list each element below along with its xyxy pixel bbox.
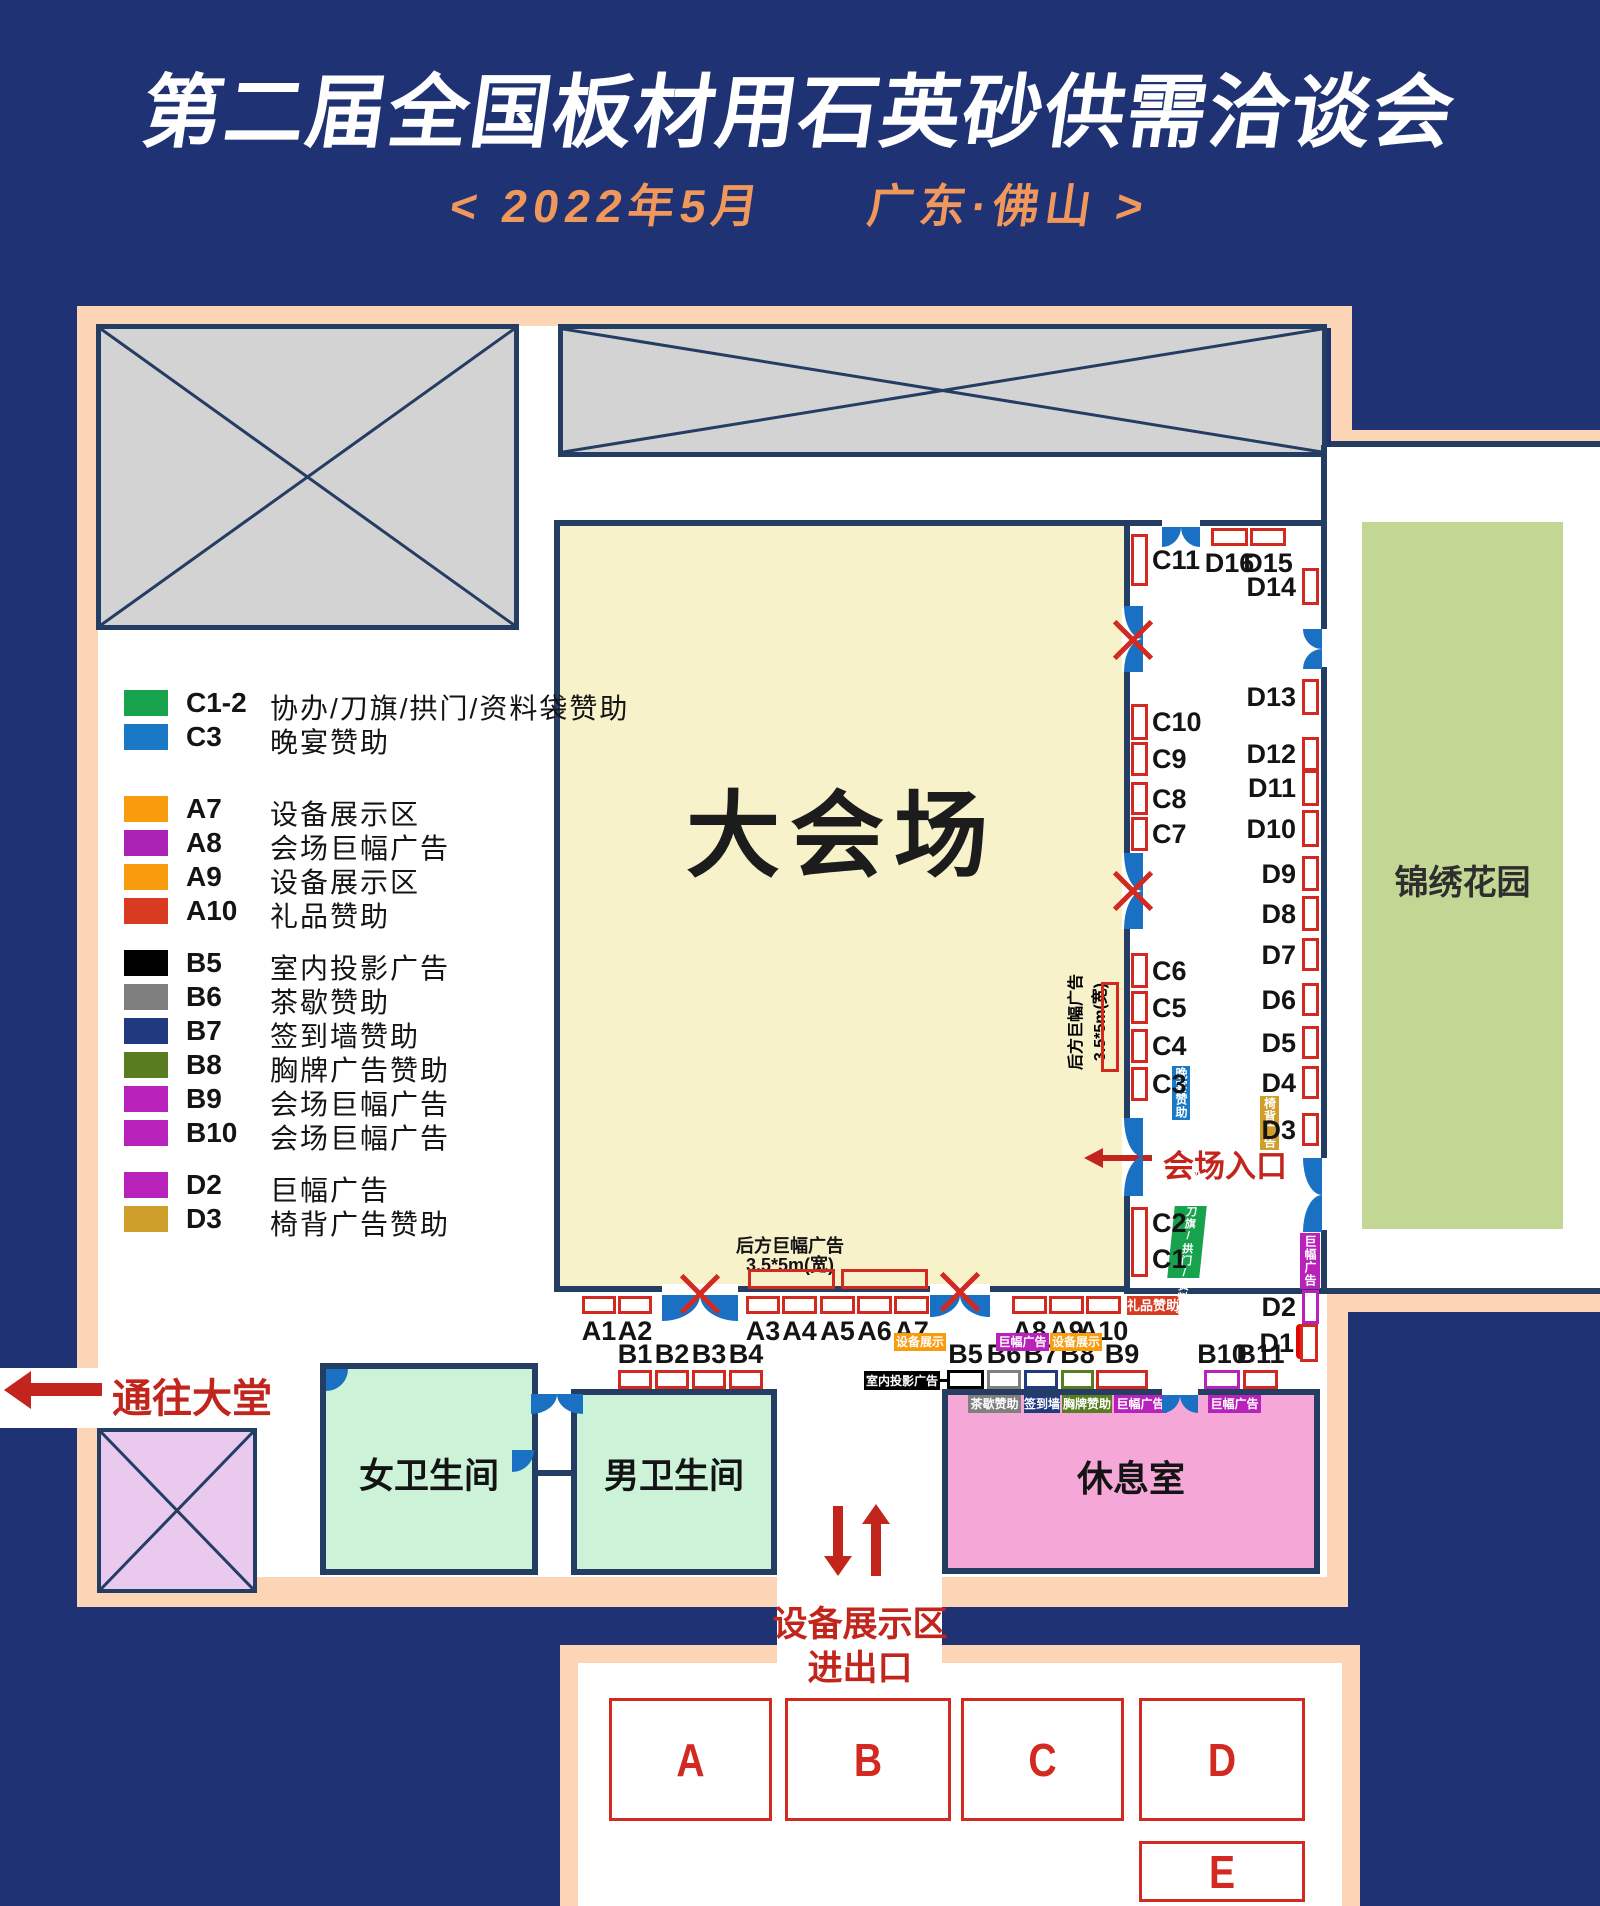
booth-label-c1: C1 <box>1152 1244 1187 1275</box>
legend-swatch-A7 <box>124 796 168 822</box>
booth-label-d3: D3 <box>1261 1115 1296 1146</box>
legend-label-D3: 椅背广告赞助 <box>270 1203 450 1243</box>
tag-badge-b8: 胸牌赞助 <box>1062 1395 1112 1413</box>
booth-a2 <box>618 1296 652 1314</box>
legend-label-A10: 礼品赞助 <box>270 895 390 935</box>
booth-d4 <box>1302 1066 1319 1099</box>
legend-code-D3: D3 <box>186 1203 222 1235</box>
booth-label-d4: D4 <box>1261 1068 1296 1099</box>
legend-swatch-B9 <box>124 1086 168 1112</box>
booth-label-b3: B3 <box>692 1339 727 1370</box>
booth-c3 <box>1131 1067 1148 1101</box>
booth-c9 <box>1131 742 1148 776</box>
door-women-topleft-leaf <box>326 1369 348 1391</box>
booth-label-d2: D2 <box>1261 1292 1296 1323</box>
door-hall-bottom-1-leaf <box>662 1295 700 1321</box>
zone-label-a: A <box>621 1698 760 1821</box>
booth-d1 <box>1300 1324 1318 1362</box>
booth-b6 <box>987 1370 1021 1389</box>
door-lounge-top-leaf <box>1180 1395 1198 1413</box>
booth-d2 <box>1302 1290 1319 1324</box>
legend-code-B8: B8 <box>186 1049 222 1081</box>
legend-code-A10: A10 <box>186 895 237 927</box>
booth-d9 <box>1302 856 1319 891</box>
booth-label-d1: D1 <box>1259 1328 1294 1359</box>
booth-a6 <box>857 1296 892 1314</box>
legend-swatch-B7 <box>124 1018 168 1044</box>
zone-label-e: E <box>1151 1841 1292 1902</box>
booth-label-c6: C6 <box>1152 956 1187 987</box>
legend-code-D2: D2 <box>186 1169 222 1201</box>
tag-banner-b9: 巨幅广告 <box>1114 1395 1167 1413</box>
booth-label-d9: D9 <box>1261 859 1296 890</box>
tag-tea-b6: 茶歇赞助 <box>968 1395 1021 1413</box>
door-hall-bottom-2-leaf <box>930 1295 960 1317</box>
booth-d6 <box>1302 983 1319 1016</box>
booth-label-d5: D5 <box>1261 1028 1296 1059</box>
booth-b11 <box>1243 1370 1278 1389</box>
booth-a4 <box>782 1296 817 1314</box>
door-hall-right-2-leaf <box>1124 853 1143 891</box>
booth-b10 <box>1204 1370 1240 1389</box>
booth-label-c10: C10 <box>1152 707 1202 738</box>
legend-code-B9: B9 <box>186 1083 222 1115</box>
door-restroom-passage-leaf <box>557 1394 583 1414</box>
booth-a5 <box>820 1296 855 1314</box>
booth-label-c4: C4 <box>1152 1031 1187 1062</box>
tag-tea-b6-text: 茶歇赞助 <box>970 1398 1018 1410</box>
booth-d14 <box>1302 568 1319 605</box>
booth-b7 <box>1024 1370 1058 1389</box>
door-restroom-passage-leaf <box>531 1394 557 1414</box>
booth-label-b1: B1 <box>618 1339 653 1370</box>
booth-label-c3: C3 <box>1152 1069 1187 1100</box>
booth-c8 <box>1131 782 1148 815</box>
door-hall-entrance-leaf <box>1124 1118 1143 1157</box>
booth-b8 <box>1061 1370 1094 1389</box>
booth-label-c9: C9 <box>1152 744 1187 775</box>
booth-label-d6: D6 <box>1261 985 1296 1016</box>
booth-d7 <box>1302 938 1319 971</box>
floorplan-poster: 第二届全国板材用石英砂供需洽谈会 < 2022年5月 广东·佛山 > 锦绣花园 … <box>0 0 1600 1906</box>
booth-label-b2: B2 <box>655 1339 690 1370</box>
booth-d8 <box>1302 896 1319 931</box>
booth-label-b9: B9 <box>1105 1339 1140 1370</box>
booth-label-d13: D13 <box>1246 682 1296 713</box>
booth-c11 <box>1131 534 1148 586</box>
booth-d13 <box>1302 679 1319 715</box>
tag-equipment-a7-text: 设备展示 <box>896 1336 944 1348</box>
legend-code-B10: B10 <box>186 1117 237 1149</box>
legend-swatch-D2 <box>124 1172 168 1198</box>
booth-a8 <box>1012 1296 1047 1314</box>
zone-label-d: D <box>1151 1698 1292 1821</box>
booth-b1 <box>618 1370 652 1389</box>
booth-d5 <box>1302 1026 1319 1059</box>
generated-layer: C1-2协办/刀旗/拱门/资料袋赞助C3晚宴赞助A7设备展示区A8会场巨幅广告A… <box>0 0 1600 1906</box>
booth-label-d10: D10 <box>1246 814 1296 845</box>
booth-label-d11: D11 <box>1248 773 1296 804</box>
legend-swatch-A10 <box>124 898 168 924</box>
booth-d12 <box>1302 737 1319 771</box>
booth-label-c5: C5 <box>1152 993 1187 1024</box>
booth-label-c11: C11 <box>1152 545 1200 576</box>
legend-swatch-D3 <box>124 1206 168 1232</box>
tag-signwall-b7: 签到墙 <box>1024 1395 1060 1413</box>
tag-equipment-a7: 设备展示 <box>894 1333 946 1351</box>
booth-label-c8: C8 <box>1152 784 1187 815</box>
zone-label-c: C <box>973 1698 1112 1821</box>
booth-d3 <box>1302 1113 1319 1146</box>
legend-label-C3: 晚宴赞助 <box>270 721 390 761</box>
legend-swatch-B6 <box>124 984 168 1010</box>
booth-c1-2 <box>1131 1207 1148 1277</box>
booth-c6 <box>1131 953 1148 988</box>
door-hall-right-2-leaf <box>1124 891 1143 929</box>
booth-label-a5: A5 <box>820 1316 855 1347</box>
legend-swatch-C1-2 <box>124 690 168 716</box>
booth-b9 <box>1096 1370 1148 1389</box>
booth-d16 <box>1211 528 1248 546</box>
legend-swatch-C3 <box>124 724 168 750</box>
legend-label-B10: 会场巨幅广告 <box>270 1117 450 1157</box>
booth-c5 <box>1131 991 1148 1024</box>
legend-code-C3: C3 <box>186 721 222 753</box>
booth-a1 <box>582 1296 616 1314</box>
booth-label-c7: C7 <box>1152 819 1187 850</box>
legend-swatch-A9 <box>124 864 168 890</box>
booth-c10 <box>1131 704 1148 740</box>
booth-label-d12: D12 <box>1246 739 1296 770</box>
door-corridor-right-1-leaf <box>1303 629 1322 649</box>
booth-label-b5: B5 <box>948 1339 983 1370</box>
door-women-inner-leaf <box>512 1450 534 1472</box>
booth-a10 <box>1086 1296 1121 1314</box>
legend-code-C1-2: C1-2 <box>186 687 247 719</box>
booth-d10 <box>1302 810 1319 847</box>
booth-a9 <box>1049 1296 1084 1314</box>
tag-badge-b8-text: 胸牌赞助 <box>1063 1398 1111 1410</box>
booth-label-a4: A4 <box>782 1316 817 1347</box>
door-hall-bottom-2-leaf <box>960 1295 990 1317</box>
door-corridor-top-leaf <box>1162 527 1181 547</box>
tag-banner-b10: 巨幅广告 <box>1208 1395 1261 1413</box>
tag-banner-a8-text: 巨幅广告 <box>998 1336 1046 1348</box>
legend-code-B5: B5 <box>186 947 222 979</box>
booth-b4 <box>729 1370 763 1389</box>
booth-c7 <box>1131 817 1148 851</box>
zone-label-b: B <box>797 1698 938 1821</box>
door-hall-entrance-leaf <box>1124 1157 1143 1196</box>
tag-banner-b9-text: 巨幅广告 <box>1116 1398 1164 1410</box>
door-hall-bottom-1-leaf <box>700 1295 738 1321</box>
legend-code-A8: A8 <box>186 827 222 859</box>
door-corridor-right-2-leaf <box>1303 1195 1322 1232</box>
door-corridor-top-leaf <box>1181 527 1200 547</box>
booth-a3 <box>746 1296 780 1314</box>
booth-b5 <box>947 1370 984 1389</box>
tag-equipment-a9: 设备展示 <box>1050 1333 1102 1351</box>
booth-c4 <box>1131 1029 1148 1063</box>
tag-banner-b10-text: 巨幅广告 <box>1210 1398 1258 1410</box>
booth-a7 <box>894 1296 929 1314</box>
booth-b2 <box>655 1370 689 1389</box>
legend-code-A7: A7 <box>186 793 222 825</box>
tag-equipment-a9-text: 设备展示 <box>1052 1336 1100 1348</box>
booth-b3 <box>692 1370 726 1389</box>
legend-swatch-B8 <box>124 1052 168 1078</box>
legend-code-A9: A9 <box>186 861 222 893</box>
booth-label-b4: B4 <box>729 1339 764 1370</box>
booth-label-d15: D15 <box>1243 548 1293 579</box>
tag-banner-a8: 巨幅广告 <box>996 1333 1049 1351</box>
door-corridor-right-2-leaf <box>1303 1158 1322 1195</box>
booth-d15 <box>1250 528 1286 546</box>
door-hall-right-1-leaf <box>1124 639 1143 672</box>
door-corridor-right-1-leaf <box>1303 649 1322 669</box>
legend-swatch-B10 <box>124 1120 168 1146</box>
booth-label-c2: C2 <box>1152 1208 1187 1239</box>
legend-code-B7: B7 <box>186 1015 222 1047</box>
booth-label-d7: D7 <box>1261 940 1296 971</box>
legend-code-B6: B6 <box>186 981 222 1013</box>
legend-swatch-A8 <box>124 830 168 856</box>
booth-label-a6: A6 <box>857 1316 892 1347</box>
tag-signwall-b7-text: 签到墙 <box>1024 1398 1060 1410</box>
booth-label-d8: D8 <box>1261 899 1296 930</box>
legend-swatch-B5 <box>124 950 168 976</box>
door-hall-right-1-leaf <box>1124 606 1143 639</box>
door-lounge-top-leaf <box>1162 1395 1180 1413</box>
booth-d11 <box>1302 770 1319 806</box>
booth-label-a1: A1 <box>582 1316 617 1347</box>
